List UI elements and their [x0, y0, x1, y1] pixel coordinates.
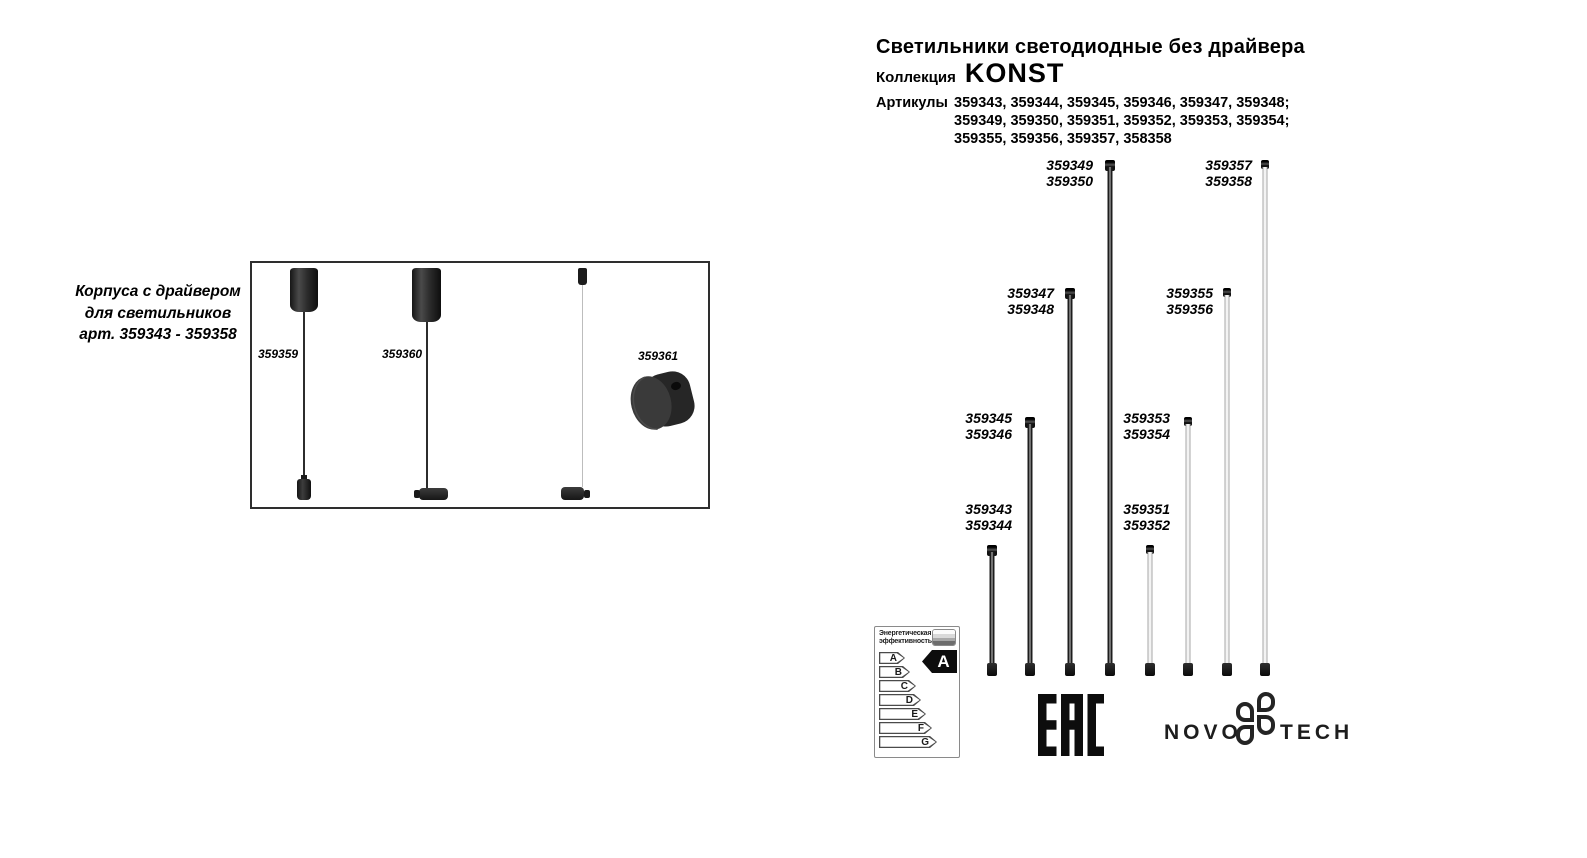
tube-end-cap: [1145, 663, 1155, 676]
pendant-wire: [582, 285, 583, 487]
pendant-ceiling-grip: [578, 268, 587, 285]
energy-class-arrow-icon: [879, 680, 916, 692]
housings-caption: Корпуса с драйвером для светильников арт…: [58, 281, 258, 346]
pendant-end-fitting: [561, 487, 584, 500]
tube-end-cap: [1065, 663, 1075, 676]
brand-text-tech: TECH: [1280, 721, 1353, 745]
tube-body: [1263, 167, 1268, 667]
energy-class-row: D: [879, 694, 921, 706]
tube-end-cap: [1222, 663, 1232, 676]
led-tube-359345: [1025, 417, 1035, 676]
catalog-page: Светильники светодиодные без драйвера Ко…: [0, 0, 1587, 858]
tube-label: 359351 359352: [1112, 502, 1170, 533]
energy-class-arrow-icon: [879, 722, 932, 734]
energy-class-arrow-icon: [879, 708, 926, 720]
tube-end-cap: [1260, 663, 1270, 676]
pendant-end-fitting: [419, 488, 448, 500]
drum-housing-359361: [630, 370, 696, 432]
tube-label: 359343 359344: [954, 502, 1012, 533]
led-tube-359355: [1222, 288, 1232, 676]
caption-line: Корпуса с драйвером: [58, 281, 258, 303]
novotech-logo: NOVO TECH: [1164, 690, 1359, 756]
tube-body: [1068, 295, 1073, 667]
energy-rating-arrow-icon: A: [922, 650, 957, 673]
pendant-cylinder: [412, 268, 441, 322]
energy-gradient-icon: [932, 629, 956, 646]
caption-line: арт. 359343 - 359358: [58, 324, 258, 346]
pendant-connector: [414, 490, 420, 498]
pendant-cable: [303, 312, 305, 477]
led-tube-359343: [987, 545, 997, 676]
tube-label: 359357 359358: [1194, 158, 1252, 189]
item-label-359361: 359361: [638, 349, 678, 363]
pendant-cylinder: [290, 268, 318, 312]
energy-class-row: C: [879, 680, 916, 692]
tube-end-cap: [1105, 663, 1115, 676]
tube-body: [990, 552, 995, 667]
energy-class-row: E: [879, 708, 926, 720]
tube-end-cap: [1025, 663, 1035, 676]
articles-label: Артикулы: [876, 95, 954, 148]
tube-end-cap: [1183, 663, 1193, 676]
tube-label: 359349 359350: [1035, 158, 1093, 189]
energy-class-row: F: [879, 722, 932, 734]
energy-class-row: B: [879, 666, 910, 678]
articles-list: 359343, 359344, 359345, 359346, 359347, …: [954, 95, 1289, 148]
caption-line: для светильников: [58, 303, 258, 325]
pendant-suspension-kit: [561, 268, 597, 502]
tube-body: [1225, 295, 1230, 667]
pendant-connector: [584, 490, 590, 498]
brand-text-novo: NOVO: [1164, 721, 1242, 745]
energy-class-row: A: [879, 652, 905, 664]
led-tube-359347: [1065, 288, 1075, 676]
pendant-housing-359359: [290, 268, 320, 501]
pendant-cable: [426, 322, 428, 488]
pendant-end-fitting: [297, 479, 311, 500]
collection-label: Коллекция: [876, 69, 956, 86]
tube-label: 359345 359346: [954, 411, 1012, 442]
tube-body: [1028, 424, 1033, 667]
tube-label: 359353 359354: [1112, 411, 1170, 442]
energy-class-row: G: [879, 736, 937, 748]
articles-line: 359349, 359350, 359351, 359352, 359353, …: [954, 113, 1289, 131]
collection-line: КоллекцияKONST: [876, 58, 1064, 89]
tube-body: [1148, 552, 1153, 667]
articles-line: 359343, 359344, 359345, 359346, 359347, …: [954, 95, 1289, 113]
articles-block: Артикулы 359343, 359344, 359345, 359346,…: [876, 95, 1289, 148]
led-tube-359357: [1260, 160, 1270, 676]
collection-name: KONST: [965, 58, 1065, 88]
articles-line: 359355, 359356, 359357, 358358: [954, 131, 1289, 149]
tube-end-cap: [987, 663, 997, 676]
tube-label: 359347 359348: [996, 286, 1054, 317]
energy-class-arrow-icon: [879, 694, 921, 706]
item-label-359359: 359359: [258, 347, 298, 361]
energy-efficiency-label: Энергетическая эффективность A B C D E: [874, 626, 960, 758]
led-tube-359351: [1145, 545, 1155, 676]
tube-label: 359355 359356: [1155, 286, 1213, 317]
novotech-flower-icon: [1236, 692, 1277, 747]
tube-body: [1186, 424, 1191, 667]
eac-certification-icon: [1038, 694, 1104, 756]
page-title: Светильники светодиодные без драйвера: [876, 36, 1305, 59]
item-label-359360: 359360: [382, 347, 422, 361]
pendant-housing-359360: [412, 268, 448, 501]
led-tube-359353: [1183, 417, 1193, 676]
energy-label-header: Энергетическая эффективность: [879, 630, 937, 646]
